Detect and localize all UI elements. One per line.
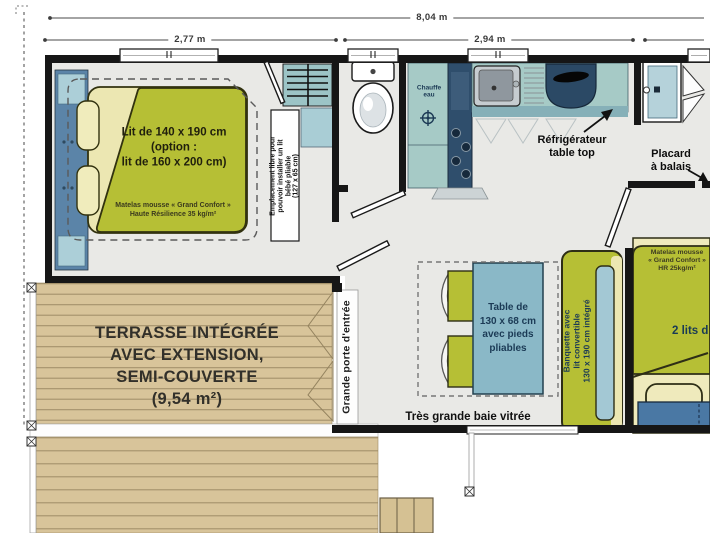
step-mat	[432, 188, 488, 199]
text-line: Matelas mousse « Grand Confort »	[115, 201, 231, 210]
awning-dashed-line	[16, 6, 30, 426]
text-line: HR 25kg/m²	[648, 265, 706, 273]
text-line: Chauffe	[417, 85, 441, 92]
master-mattress-note: Matelas mousse « Grand Confort » Haute R…	[115, 201, 231, 219]
terrace-joint-strip	[30, 424, 378, 437]
text-line: eau	[417, 92, 441, 99]
text-line: SEMI-COUVERTE	[95, 367, 279, 389]
bay-window-label: Très grande baie vitrée	[405, 410, 530, 424]
text-line: avec pieds	[480, 328, 536, 342]
pillow	[77, 166, 99, 215]
text-line: Haute Résilience 35 kg/m²	[115, 210, 231, 219]
text-line: pliables	[480, 342, 536, 356]
text-line: (9,54 m²)	[95, 389, 279, 411]
bedside-shelf	[301, 108, 333, 147]
text-line: lit de 160 x 200 cm)	[122, 155, 227, 170]
text-line: (127 x 65 cm)	[293, 136, 301, 216]
table-label: Table de 130 x 68 cm avec pieds pliables	[480, 301, 536, 355]
text-line: 130 x 190 cm intégré	[582, 299, 592, 382]
text-line: TERRASSE INTÉGRÉE	[95, 323, 279, 345]
broom-closet-label: Placard à balais	[651, 148, 691, 174]
text-line: bébé pliable	[285, 136, 293, 216]
text-line: Réfrigérateur	[537, 134, 606, 147]
entrance-door-label: Grande porte d'entrée	[340, 300, 353, 413]
text-line: Table de	[480, 301, 536, 315]
terrace-extension	[36, 437, 378, 533]
faucet	[513, 81, 519, 87]
steps	[380, 498, 433, 533]
dimension-lines	[43, 16, 704, 42]
terrace-label: TERRASSE INTÉGRÉE AVEC EXTENSION, SEMI-C…	[95, 323, 279, 411]
baby-bed-note: Emplacement libre pour pouvoir installer…	[269, 136, 300, 216]
wardrobe-rack	[283, 64, 332, 106]
dining-chair	[445, 336, 475, 387]
washbasin	[643, 62, 681, 122]
bench-backrest	[596, 266, 614, 420]
text-line: Placard	[651, 148, 691, 161]
text-line: à balais	[651, 161, 691, 174]
twin-beds-label: 2 lits d	[672, 324, 708, 338]
dimension-section-middle: 2,94 m	[468, 34, 511, 46]
text-line: pouvoir installer un lit	[277, 136, 285, 216]
text-line: Emplacement libre pour	[269, 136, 277, 216]
text-line: (option :	[122, 141, 227, 156]
dimension-dot	[43, 16, 647, 42]
text-line: Lit de 140 x 190 cm	[122, 126, 227, 141]
master-bed-label: Lit de 140 x 190 cm (option : lit de 160…	[122, 126, 227, 171]
floor-plan: 8,04 m 2,77 m 2,94 m Lit de 140 x 190 cm…	[0, 0, 710, 533]
water-heater-unit	[408, 63, 448, 188]
text-line: AVEC EXTENSION,	[95, 345, 279, 367]
pillow	[77, 101, 99, 150]
text-line: « Grand Confort »	[648, 257, 706, 265]
floor-plan-drawing	[0, 0, 710, 533]
refrigerator	[546, 64, 596, 108]
bay-window	[467, 426, 578, 490]
text-line: 130 x 68 cm	[480, 315, 536, 329]
toilet	[352, 62, 394, 133]
dimension-section-left: 2,77 m	[168, 34, 211, 46]
dining-chair	[445, 271, 475, 321]
bench-label: Banquette avec lit convertible 130 x 190…	[562, 299, 591, 382]
twin-mattress-note: Matelas mousse « Grand Confort » HR 25kg…	[648, 249, 706, 273]
text-line: Matelas mousse	[648, 249, 706, 257]
fridge-label: Réfrigérateur table top	[537, 134, 606, 160]
text-line: table top	[537, 147, 606, 160]
water-heater-label: Chauffe eau	[417, 85, 441, 100]
dimension-total: 8,04 m	[410, 12, 453, 24]
